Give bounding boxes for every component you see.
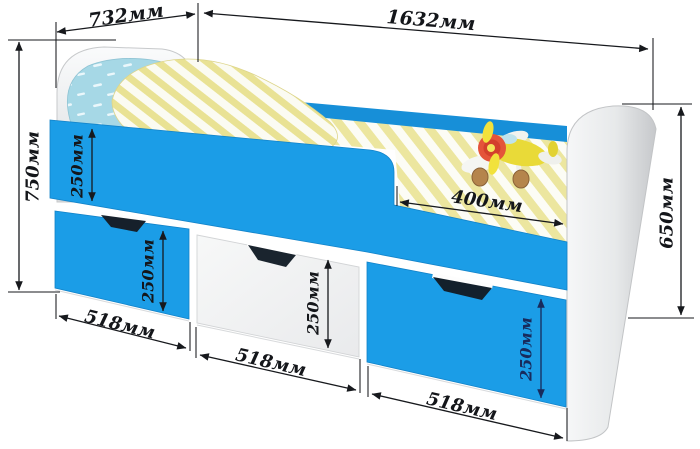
footboard-panel	[567, 106, 656, 441]
dim-drawer1-height-label: 250мм	[139, 239, 158, 304]
dim-drawer3-height-label: 250мм	[517, 317, 536, 382]
dim-side-panel-height-label: 250мм	[68, 134, 87, 199]
drawer-1	[55, 211, 189, 319]
bed-dimension-diagram: 732мм 1632мм 750мм 650мм 250мм 250	[0, 0, 700, 449]
dim-drawer3-width-label: 518мм	[424, 388, 499, 425]
airplane-tail-fin	[548, 141, 558, 157]
dim-footboard-height-label: 650мм	[656, 177, 677, 249]
dim-drawer2-width-label: 518мм	[233, 344, 308, 381]
dim-overall-height-label: 750мм	[22, 131, 43, 203]
drawer-2	[197, 235, 359, 357]
dim-headboard-width-label: 732мм	[87, 0, 165, 32]
dim-drawer2-height-label: 250мм	[304, 271, 323, 336]
airplane-spinner	[487, 144, 495, 152]
dim-drawer1-width-label: 518мм	[82, 306, 157, 344]
dim-bed-length-label: 1632мм	[386, 6, 476, 35]
airplane-wheel-left	[472, 168, 488, 186]
airplane-wheel-right	[513, 170, 529, 188]
diagram-canvas: 732мм 1632мм 750мм 650мм 250мм 250	[0, 0, 700, 449]
